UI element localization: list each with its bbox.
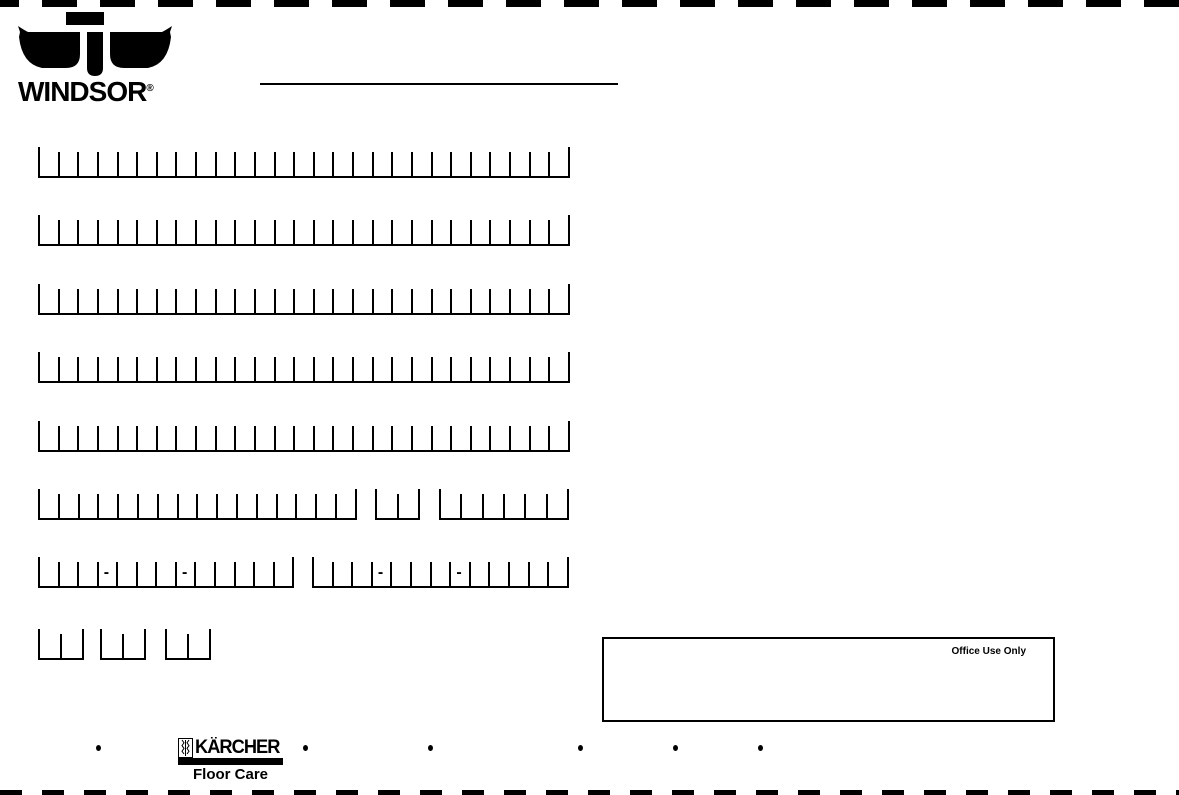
comb-tick [117, 357, 119, 381]
comb-tick [509, 220, 511, 244]
comb-tick [509, 426, 511, 450]
comb-tick [352, 426, 354, 450]
comb-tick [567, 489, 569, 518]
comb-tick [117, 289, 119, 313]
comb-tick [274, 289, 276, 313]
comb-tick [215, 152, 217, 176]
comb-tick [567, 557, 569, 586]
comb-tick [196, 494, 198, 518]
footer-bullet [303, 745, 308, 751]
comb-baseline [38, 450, 570, 452]
comb-tick [488, 562, 490, 586]
comb-tick [155, 562, 157, 586]
comb-field-row8-group1[interactable] [38, 629, 82, 660]
comb-tick [256, 494, 258, 518]
comb-tick [470, 220, 472, 244]
comb-tick [157, 494, 159, 518]
comb-tick [410, 562, 412, 586]
comb-tick [450, 152, 452, 176]
comb-tick [215, 426, 217, 450]
comb-baseline [38, 176, 570, 178]
comb-baseline [439, 518, 569, 520]
comb-tick [548, 289, 550, 313]
comb-tick [38, 489, 40, 518]
comb-tick [253, 562, 255, 586]
comb-tick [77, 289, 79, 313]
comb-tick [548, 426, 550, 450]
comb-tick [469, 562, 471, 586]
comb-tick [351, 562, 353, 586]
comb-tick [293, 357, 295, 381]
office-use-only-label: Office Use Only [952, 646, 1026, 657]
comb-tick [547, 562, 549, 586]
comb-tick [60, 634, 62, 658]
comb-tick [156, 152, 158, 176]
comb-tick [175, 357, 177, 381]
comb-tick [100, 629, 102, 658]
comb-field-row7-group2[interactable]: -- [312, 557, 567, 588]
comb-tick [372, 357, 374, 381]
comb-field-row1-group1[interactable] [38, 147, 568, 178]
comb-tick [195, 426, 197, 450]
windsor-logo: WINDSOR® [18, 10, 208, 110]
comb-tick [529, 152, 531, 176]
comb-tick [411, 289, 413, 313]
comb-tick [529, 426, 531, 450]
comb-tick [372, 152, 374, 176]
comb-tick [175, 289, 177, 313]
comb-field-row4-group1[interactable] [38, 352, 568, 383]
comb-baseline [165, 658, 211, 660]
comb-tick [216, 494, 218, 518]
comb-tick [254, 289, 256, 313]
comb-tick [431, 426, 433, 450]
comb-tick [274, 220, 276, 244]
comb-tick [156, 426, 158, 450]
comb-tick [58, 494, 60, 518]
comb-tick [117, 220, 119, 244]
comb-tick [293, 220, 295, 244]
comb-tick [529, 220, 531, 244]
comb-tick [234, 357, 236, 381]
comb-tick [215, 220, 217, 244]
comb-tick [274, 357, 276, 381]
comb-tick [352, 220, 354, 244]
comb-tick [391, 152, 393, 176]
comb-tick [355, 489, 357, 518]
comb-tick [508, 562, 510, 586]
comb-field-row6-group3[interactable] [439, 489, 567, 520]
comb-tick [58, 426, 60, 450]
comb-tick [187, 634, 189, 658]
comb-tick [528, 562, 530, 586]
karcher-logo: KÄRCHER Floor Care [178, 737, 288, 783]
comb-tick [137, 494, 139, 518]
comb-field-row6-group2[interactable] [375, 489, 418, 520]
comb-tick [254, 357, 256, 381]
comb-tick [489, 357, 491, 381]
comb-tick [156, 357, 158, 381]
comb-tick [77, 426, 79, 450]
comb-tick [313, 357, 315, 381]
comb-tick [82, 629, 84, 658]
comb-tick [391, 426, 393, 450]
footer-bullet [428, 745, 433, 751]
comb-tick [489, 152, 491, 176]
comb-tick [450, 289, 452, 313]
printed-dash: - [175, 565, 195, 581]
comb-tick [375, 489, 377, 518]
comb-tick [489, 426, 491, 450]
comb-baseline [38, 313, 570, 315]
comb-tick [372, 220, 374, 244]
comb-baseline [38, 244, 570, 246]
comb-tick [97, 289, 99, 313]
comb-tick [470, 357, 472, 381]
comb-tick [254, 152, 256, 176]
comb-tick [431, 220, 433, 244]
comb-tick [352, 152, 354, 176]
comb-tick [313, 426, 315, 450]
tear-off-line-bottom [0, 790, 1179, 795]
comb-tick [292, 557, 294, 586]
comb-tick [215, 357, 217, 381]
comb-tick [397, 494, 399, 518]
comb-tick [195, 152, 197, 176]
comb-tick [293, 289, 295, 313]
comb-tick [38, 557, 40, 586]
comb-tick [313, 152, 315, 176]
comb-tick [234, 426, 236, 450]
comb-tick [568, 421, 570, 450]
comb-baseline [38, 658, 84, 660]
comb-tick [313, 220, 315, 244]
comb-tick [177, 494, 179, 518]
comb-tick [391, 289, 393, 313]
comb-tick [509, 152, 511, 176]
comb-tick [431, 152, 433, 176]
windsor-crown-icon [18, 10, 178, 80]
comb-baseline [100, 658, 146, 660]
comb-tick [313, 289, 315, 313]
karcher-wordmark: KÄRCHER [195, 737, 279, 759]
comb-tick [372, 289, 374, 313]
comb-tick [234, 289, 236, 313]
comb-tick [38, 352, 40, 381]
comb-tick [136, 220, 138, 244]
comb-tick [568, 147, 570, 176]
comb-tick [568, 215, 570, 244]
comb-field-row3-group1[interactable] [38, 284, 568, 315]
comb-tick [77, 220, 79, 244]
comb-tick [38, 215, 40, 244]
comb-tick [97, 426, 99, 450]
comb-tick [116, 562, 118, 586]
comb-tick [58, 152, 60, 176]
comb-tick [276, 494, 278, 518]
comb-tick [136, 357, 138, 381]
comb-tick [332, 357, 334, 381]
comb-tick [234, 220, 236, 244]
comb-tick [78, 494, 80, 518]
comb-field-row5-group1[interactable] [38, 421, 568, 452]
comb-tick [332, 289, 334, 313]
comb-tick [548, 357, 550, 381]
comb-tick [58, 562, 60, 586]
comb-tick [165, 629, 167, 658]
comb-tick [431, 289, 433, 313]
windsor-wordmark: WINDSOR® [18, 76, 154, 108]
printed-dash: - [449, 565, 469, 581]
comb-tick [215, 289, 217, 313]
comb-tick [38, 284, 40, 313]
comb-tick [117, 426, 119, 450]
comb-tick [332, 220, 334, 244]
comb-tick [352, 357, 354, 381]
comb-tick [470, 152, 472, 176]
comb-tick [411, 357, 413, 381]
comb-tick [529, 357, 531, 381]
comb-tick [509, 357, 511, 381]
comb-tick [390, 562, 392, 586]
comb-tick [293, 152, 295, 176]
comb-tick [38, 629, 40, 658]
karcher-logo-bar [178, 758, 283, 765]
comb-tick [439, 489, 441, 518]
comb-tick [332, 562, 334, 586]
comb-tick [418, 489, 420, 518]
comb-tick [372, 426, 374, 450]
comb-tick [136, 289, 138, 313]
comb-tick [77, 152, 79, 176]
comb-tick [529, 289, 531, 313]
comb-tick [332, 426, 334, 450]
comb-tick [58, 289, 60, 313]
comb-tick [274, 152, 276, 176]
footer-bullet [96, 745, 101, 751]
comb-tick [524, 494, 526, 518]
comb-tick [236, 494, 238, 518]
comb-tick [548, 152, 550, 176]
comb-tick [122, 634, 124, 658]
registration-card: WINDSOR® ---- Office Use Only KÄRCHER Fl… [0, 0, 1179, 795]
comb-tick [58, 220, 60, 244]
comb-tick [175, 426, 177, 450]
comb-tick [431, 357, 433, 381]
comb-tick [312, 557, 314, 586]
footer-bullet [578, 745, 583, 751]
comb-tick [234, 562, 236, 586]
comb-tick [209, 629, 211, 658]
comb-field-row8-group3[interactable] [165, 629, 209, 660]
comb-tick [77, 562, 79, 586]
comb-tick [117, 152, 119, 176]
comb-baseline [38, 518, 357, 520]
comb-tick [97, 220, 99, 244]
comb-tick [335, 494, 337, 518]
comb-tick [254, 426, 256, 450]
comb-tick [391, 220, 393, 244]
comb-tick [460, 494, 462, 518]
comb-tick [548, 220, 550, 244]
comb-tick [391, 357, 393, 381]
comb-tick [546, 494, 548, 518]
comb-tick [38, 147, 40, 176]
comb-tick [144, 629, 146, 658]
comb-tick [175, 152, 177, 176]
comb-tick [97, 357, 99, 381]
karcher-emblem-icon [178, 738, 193, 758]
comb-tick [117, 494, 119, 518]
comb-tick [411, 152, 413, 176]
comb-tick [97, 494, 99, 518]
comb-baseline [375, 518, 420, 520]
floor-care-label: Floor Care [178, 766, 283, 783]
comb-tick [273, 562, 275, 586]
tear-off-line-top [0, 0, 1179, 7]
comb-baseline [312, 586, 569, 588]
comb-tick [489, 220, 491, 244]
comb-tick [470, 289, 472, 313]
comb-field-row8-group2[interactable] [100, 629, 144, 660]
comb-tick [315, 494, 317, 518]
title-blank-line[interactable] [260, 83, 618, 85]
comb-tick [77, 357, 79, 381]
comb-tick [214, 562, 216, 586]
registered-trademark-symbol: ® [146, 83, 153, 94]
comb-tick [156, 289, 158, 313]
comb-tick [509, 289, 511, 313]
comb-tick [274, 426, 276, 450]
comb-field-row6-group1[interactable] [38, 489, 355, 520]
comb-tick [136, 562, 138, 586]
comb-tick [503, 494, 505, 518]
comb-tick [470, 426, 472, 450]
comb-tick [136, 152, 138, 176]
comb-tick [195, 289, 197, 313]
comb-baseline [38, 381, 570, 383]
comb-tick [489, 289, 491, 313]
footer-bullet [673, 745, 678, 751]
comb-tick [195, 220, 197, 244]
comb-tick [352, 289, 354, 313]
office-use-only-box: Office Use Only [602, 637, 1055, 722]
comb-tick [568, 352, 570, 381]
comb-tick [136, 426, 138, 450]
comb-field-row2-group1[interactable] [38, 215, 568, 246]
comb-tick [293, 426, 295, 450]
comb-tick [295, 494, 297, 518]
comb-tick [97, 152, 99, 176]
comb-tick [411, 426, 413, 450]
comb-tick [175, 220, 177, 244]
comb-tick [194, 562, 196, 586]
comb-tick [156, 220, 158, 244]
comb-field-row7-group1[interactable]: -- [38, 557, 292, 588]
comb-tick [58, 357, 60, 381]
comb-tick [411, 220, 413, 244]
comb-tick [568, 284, 570, 313]
comb-tick [450, 357, 452, 381]
comb-tick [234, 152, 236, 176]
comb-tick [254, 220, 256, 244]
comb-tick [332, 152, 334, 176]
comb-tick [195, 357, 197, 381]
printed-dash: - [97, 565, 117, 581]
comb-tick [450, 220, 452, 244]
comb-tick [430, 562, 432, 586]
footer-bullet [758, 745, 763, 751]
comb-tick [450, 426, 452, 450]
printed-dash: - [371, 565, 391, 581]
comb-tick [38, 421, 40, 450]
comb-baseline [38, 586, 294, 588]
comb-tick [482, 494, 484, 518]
